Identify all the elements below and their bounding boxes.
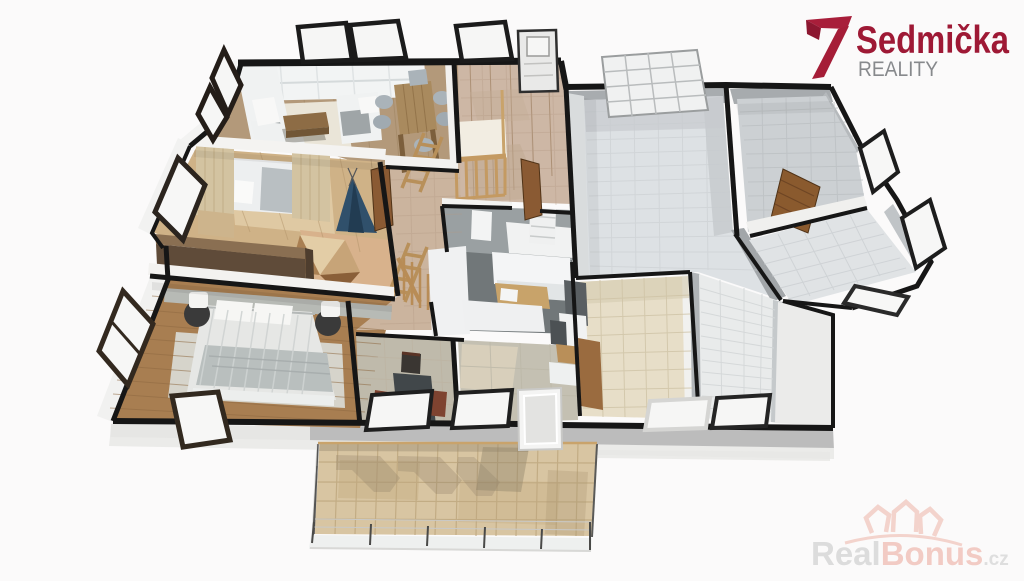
svg-text:REALITY: REALITY	[858, 58, 938, 81]
svg-text:Sedmička: Sedmička	[856, 19, 1009, 62]
svg-text:RealBonus.cz: RealBonus.cz	[811, 535, 1009, 572]
